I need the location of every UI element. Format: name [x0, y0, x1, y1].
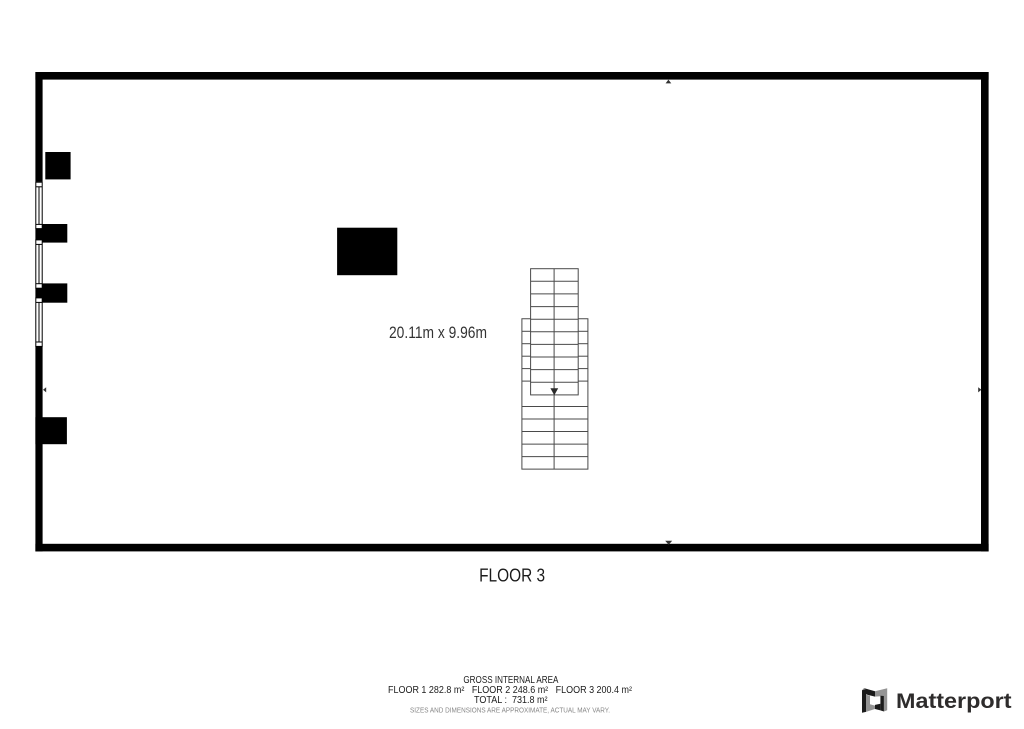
svg-text:20.11m x 9.96m: 20.11m x 9.96m	[389, 323, 487, 342]
svg-text:Matterport: Matterport	[896, 690, 1012, 713]
svg-text:SIZES AND DIMENSIONS ARE APPRO: SIZES AND DIMENSIONS ARE APPROXIMATE, AC…	[410, 706, 610, 715]
svg-text:TOTAL : 731.8 m²: TOTAL : 731.8 m²	[474, 695, 548, 706]
svg-text:FLOOR 3: FLOOR 3	[479, 566, 545, 586]
